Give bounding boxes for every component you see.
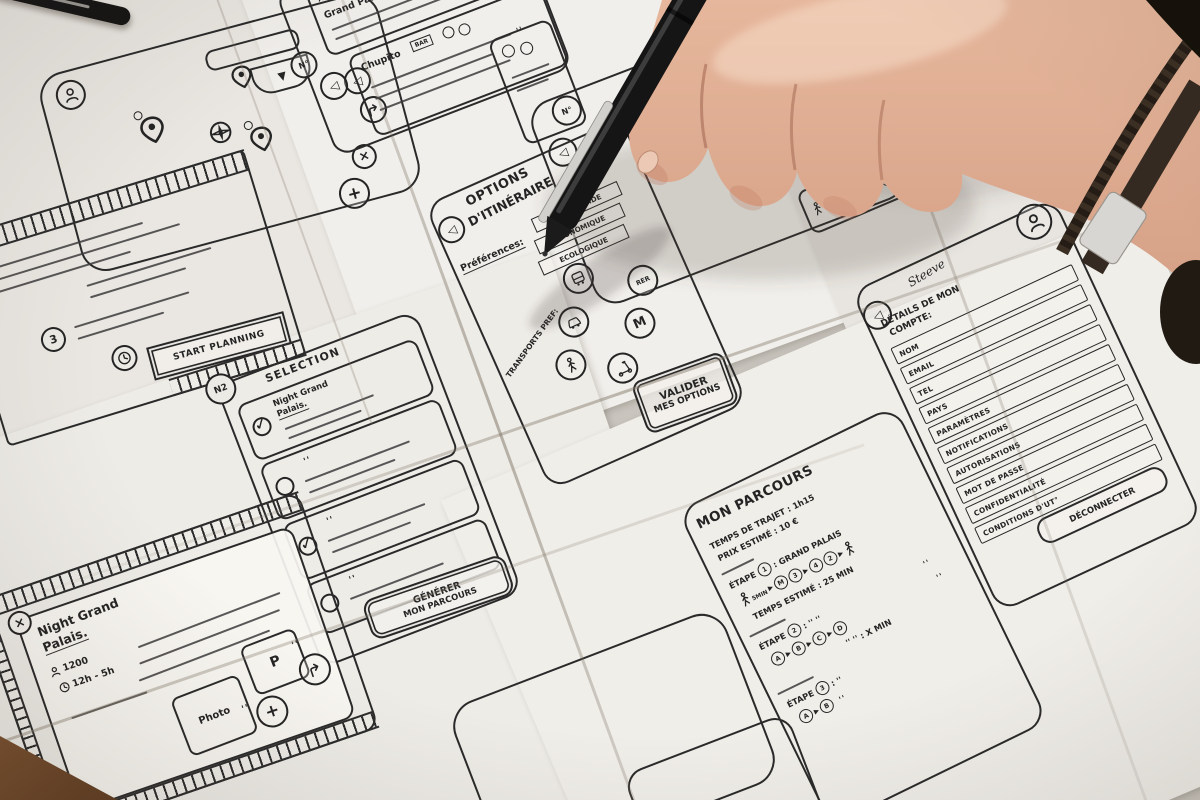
add-button: + [252, 691, 293, 732]
ditto-mark: '' [325, 515, 336, 527]
back-button: ◁ [316, 68, 352, 104]
close-icon: × [357, 148, 371, 165]
row-label: NOM [898, 341, 921, 358]
walk-time-label: 5m [823, 199, 835, 210]
step-number: 3 [48, 332, 59, 347]
person-icon [1022, 209, 1047, 234]
person-icon [48, 665, 62, 679]
row-label: EMAIL [907, 359, 935, 379]
close-button: × [4, 608, 35, 639]
capacity-value: 1200 [61, 655, 90, 674]
user-avatar-icon [52, 77, 89, 114]
photo-box: Photo [170, 674, 259, 758]
step-destination: : '' [829, 674, 844, 688]
badge-label: N2 [213, 382, 229, 396]
clock-icon [58, 680, 72, 694]
transit-line-badge: 4 [879, 170, 897, 188]
preferences-label: Préférences: [459, 237, 526, 276]
walking-person-icon [561, 355, 580, 375]
poi-row-label: Chupito [360, 48, 403, 73]
placeholder-line [78, 312, 165, 340]
arrow-icon: ▶ [911, 163, 919, 172]
parking-label: P [268, 653, 283, 672]
poi-mini-icon [457, 22, 473, 38]
back-triangle-icon: ◁ [445, 221, 459, 238]
map-pin-icon [228, 63, 255, 92]
photo-label: Photo [197, 705, 232, 727]
plus-icon: + [262, 700, 282, 724]
row-label: PAYS [926, 401, 949, 418]
ditto-mark: '' [302, 455, 313, 467]
map-pin-icon [247, 123, 277, 154]
ditto-mark: '' [922, 558, 932, 569]
arrow-icon: ▶ [873, 179, 881, 188]
map-pin-icon [137, 113, 169, 147]
walk-time: 5MIN [751, 589, 769, 602]
row-label: TEL [916, 383, 934, 398]
car-icon [563, 311, 585, 333]
compass-icon [206, 118, 235, 147]
transit-line-badge: 2 [894, 163, 912, 181]
transport-rer-button: RER [622, 260, 663, 301]
chevron-down-icon: ▼ [276, 68, 288, 83]
transport-metro-button: M [620, 303, 661, 344]
arrow-icon: ▶ [834, 196, 842, 205]
placeholder-line [71, 691, 147, 719]
rer-label: RER [635, 274, 651, 287]
metro-label: M [631, 314, 649, 333]
transport-walk-button [550, 344, 591, 385]
transit-line-badge: M [840, 186, 858, 204]
close-icon: × [12, 614, 27, 632]
step-badge: 3 [38, 324, 69, 355]
map-pin-icon [765, 139, 803, 178]
category-tag: BAR [409, 34, 433, 52]
map-pin-icon [689, 109, 725, 146]
screen-number-badge: N° [547, 91, 586, 130]
ditto-mark: '' [935, 571, 945, 582]
placeholder-line [305, 440, 410, 482]
step2-time: '' '' : X MIN [844, 617, 893, 648]
scooter-icon [612, 358, 633, 379]
checkbox-checked: ✓ [250, 414, 275, 439]
turn-arrow-icon [306, 660, 324, 678]
badge-label: N° [297, 59, 310, 71]
person-icon [61, 85, 81, 105]
placeholder-line [517, 78, 549, 92]
ditto-mark: '' [837, 693, 847, 704]
photo-of-wireframe-sketches: ▼ ◁ × + N° Avec Ad. Grand Palais [0, 0, 1200, 800]
poi-mini-icon [813, 129, 836, 152]
poi-mini-icon [500, 43, 517, 60]
placeholder-line [86, 247, 211, 287]
step-destination: : '' '' [801, 613, 823, 630]
time-badge [108, 342, 140, 374]
poi-mini-icon [518, 40, 535, 57]
check-icon: ✓ [251, 412, 271, 436]
ditto-mark: '' [348, 574, 359, 586]
step-number-badge: 1 [755, 560, 774, 579]
step-number-badge: 2 [785, 621, 804, 640]
badge-label: N° [560, 104, 573, 116]
transit-line-badge: 3 [856, 179, 874, 197]
plus-icon: + [345, 182, 364, 205]
poi-mini-icon [441, 25, 457, 41]
step-number-badge: 3 [813, 679, 832, 698]
clock-icon [116, 349, 133, 366]
placeholder-line [90, 267, 186, 298]
bus-icon [567, 267, 589, 289]
placeholder-line [512, 63, 550, 79]
back-triangle-icon: ◁ [327, 78, 341, 94]
